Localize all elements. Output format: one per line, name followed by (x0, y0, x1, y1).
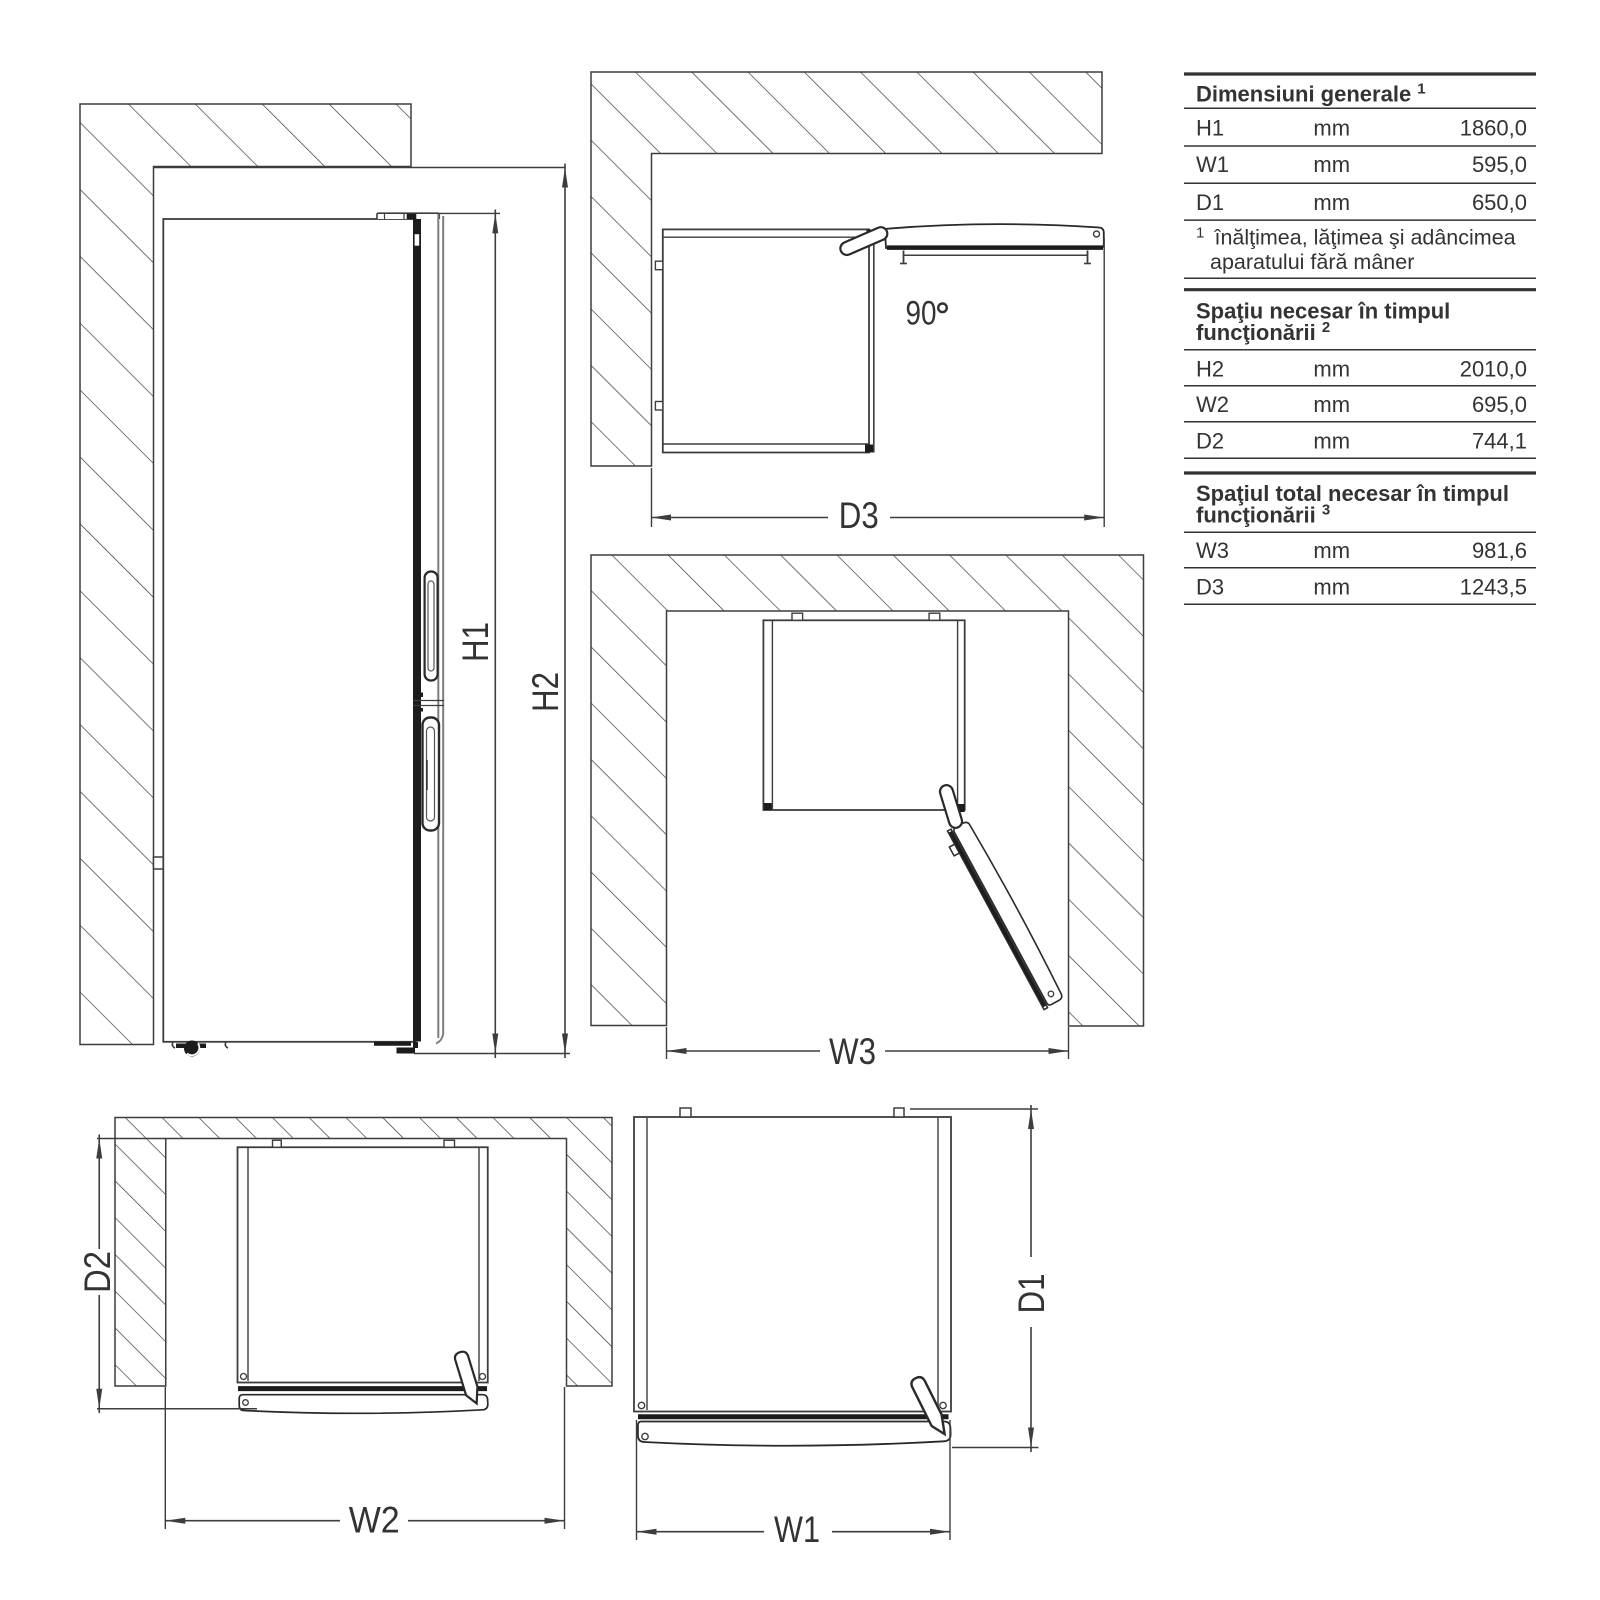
svg-text:H2: H2 (1196, 357, 1224, 382)
svg-text:744,1: 744,1 (1472, 429, 1527, 454)
svg-text:D3: D3 (1196, 575, 1224, 600)
svg-text:mm: mm (1313, 429, 1350, 454)
svg-text:1243,5: 1243,5 (1460, 575, 1527, 600)
svg-text:D3: D3 (839, 495, 879, 536)
svg-text:695,0: 695,0 (1472, 392, 1527, 417)
svg-text:D1: D1 (1011, 1274, 1052, 1314)
svg-text:H1: H1 (1196, 116, 1224, 141)
svg-text:mm: mm (1313, 538, 1350, 563)
svg-text:mm: mm (1313, 392, 1350, 417)
svg-text:H1: H1 (455, 622, 496, 662)
svg-text:2010,0: 2010,0 (1460, 357, 1527, 382)
svg-text:595,0: 595,0 (1472, 152, 1527, 177)
svg-text:1860,0: 1860,0 (1460, 116, 1527, 141)
svg-text:mm: mm (1313, 575, 1350, 600)
svg-text:mm: mm (1313, 152, 1350, 177)
svg-text:W2: W2 (349, 1500, 400, 1541)
svg-text:mm: mm (1313, 357, 1350, 382)
svg-text:1 înălţimea, lăţimea şi adânci: 1 înălţimea, lăţimea şi adâncimea (1196, 225, 1516, 250)
svg-text:W1: W1 (1196, 152, 1229, 177)
svg-text:aparatului fără mâner: aparatului fără mâner (1210, 250, 1414, 274)
svg-text:W3: W3 (1196, 538, 1229, 563)
svg-text:981,6: 981,6 (1472, 538, 1527, 563)
svg-text:W3: W3 (829, 1031, 876, 1072)
svg-text:90: 90 (906, 295, 937, 333)
svg-text:mm: mm (1313, 190, 1350, 215)
svg-text:W1: W1 (774, 1509, 820, 1550)
svg-text:D2: D2 (1196, 429, 1224, 454)
svg-text:H2: H2 (525, 672, 566, 712)
svg-text:W2: W2 (1196, 392, 1229, 417)
svg-text:D1: D1 (1196, 190, 1224, 215)
svg-text:Dimensiuni generale 1: Dimensiuni generale 1 (1196, 81, 1426, 107)
svg-text:D2: D2 (77, 1251, 118, 1293)
svg-text:650,0: 650,0 (1472, 190, 1527, 215)
svg-text:funcţionării 2: funcţionării 2 (1196, 319, 1330, 345)
svg-text:mm: mm (1313, 116, 1350, 141)
svg-text:funcţionării 3: funcţionării 3 (1196, 502, 1330, 528)
